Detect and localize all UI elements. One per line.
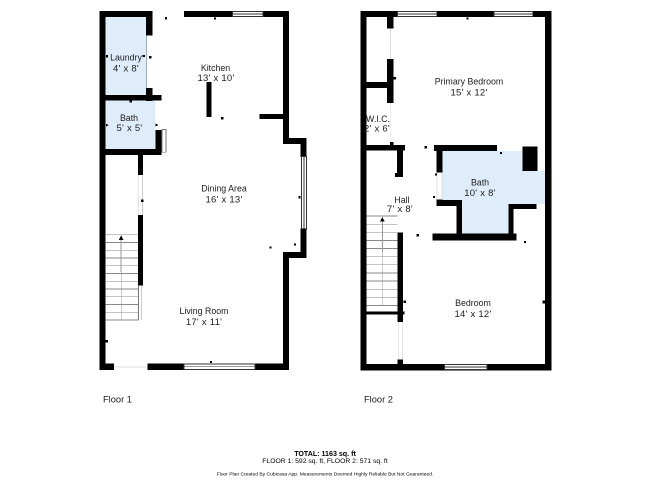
svg-text:Laundry: Laundry bbox=[110, 53, 142, 63]
svg-text:14' x 12': 14' x 12' bbox=[454, 309, 491, 320]
svg-text:16' x 13': 16' x 13' bbox=[205, 194, 242, 205]
svg-text:Floor Plan Created By Cubicasa: Floor Plan Created By Cubicasa App. Meas… bbox=[217, 471, 434, 477]
svg-text:13' x 10': 13' x 10' bbox=[197, 73, 234, 84]
svg-text:7' x 8': 7' x 8' bbox=[387, 204, 413, 215]
svg-text:Kitchen: Kitchen bbox=[201, 63, 230, 73]
svg-text:Living Room: Living Room bbox=[180, 306, 229, 316]
svg-text:17' x 11': 17' x 11' bbox=[186, 317, 222, 328]
svg-text:10' x 8': 10' x 8' bbox=[464, 188, 496, 199]
svg-text:W.I.C.: W.I.C. bbox=[366, 114, 390, 124]
svg-text:FLOOR 1: 592 sq. ft, FLOOR 2:: FLOOR 1: 592 sq. ft, FLOOR 2: 571 sq. ft bbox=[262, 458, 388, 465]
svg-text:Bath: Bath bbox=[120, 113, 138, 123]
svg-text:2' x 6': 2' x 6' bbox=[364, 124, 390, 135]
svg-text:Floor 1: Floor 1 bbox=[103, 394, 132, 404]
svg-text:4' x 8': 4' x 8' bbox=[113, 63, 139, 74]
svg-text:Primary Bedroom: Primary Bedroom bbox=[435, 76, 503, 86]
svg-text:Dining Area: Dining Area bbox=[201, 183, 247, 193]
svg-text:Bath: Bath bbox=[471, 178, 489, 188]
svg-text:Bedroom: Bedroom bbox=[455, 298, 491, 308]
svg-text:TOTAL: 1163 sq. ft: TOTAL: 1163 sq. ft bbox=[294, 450, 356, 458]
svg-text:Floor 2: Floor 2 bbox=[364, 394, 393, 404]
svg-text:5' x 5': 5' x 5' bbox=[117, 123, 143, 134]
svg-text:15' x 12': 15' x 12' bbox=[450, 88, 487, 99]
